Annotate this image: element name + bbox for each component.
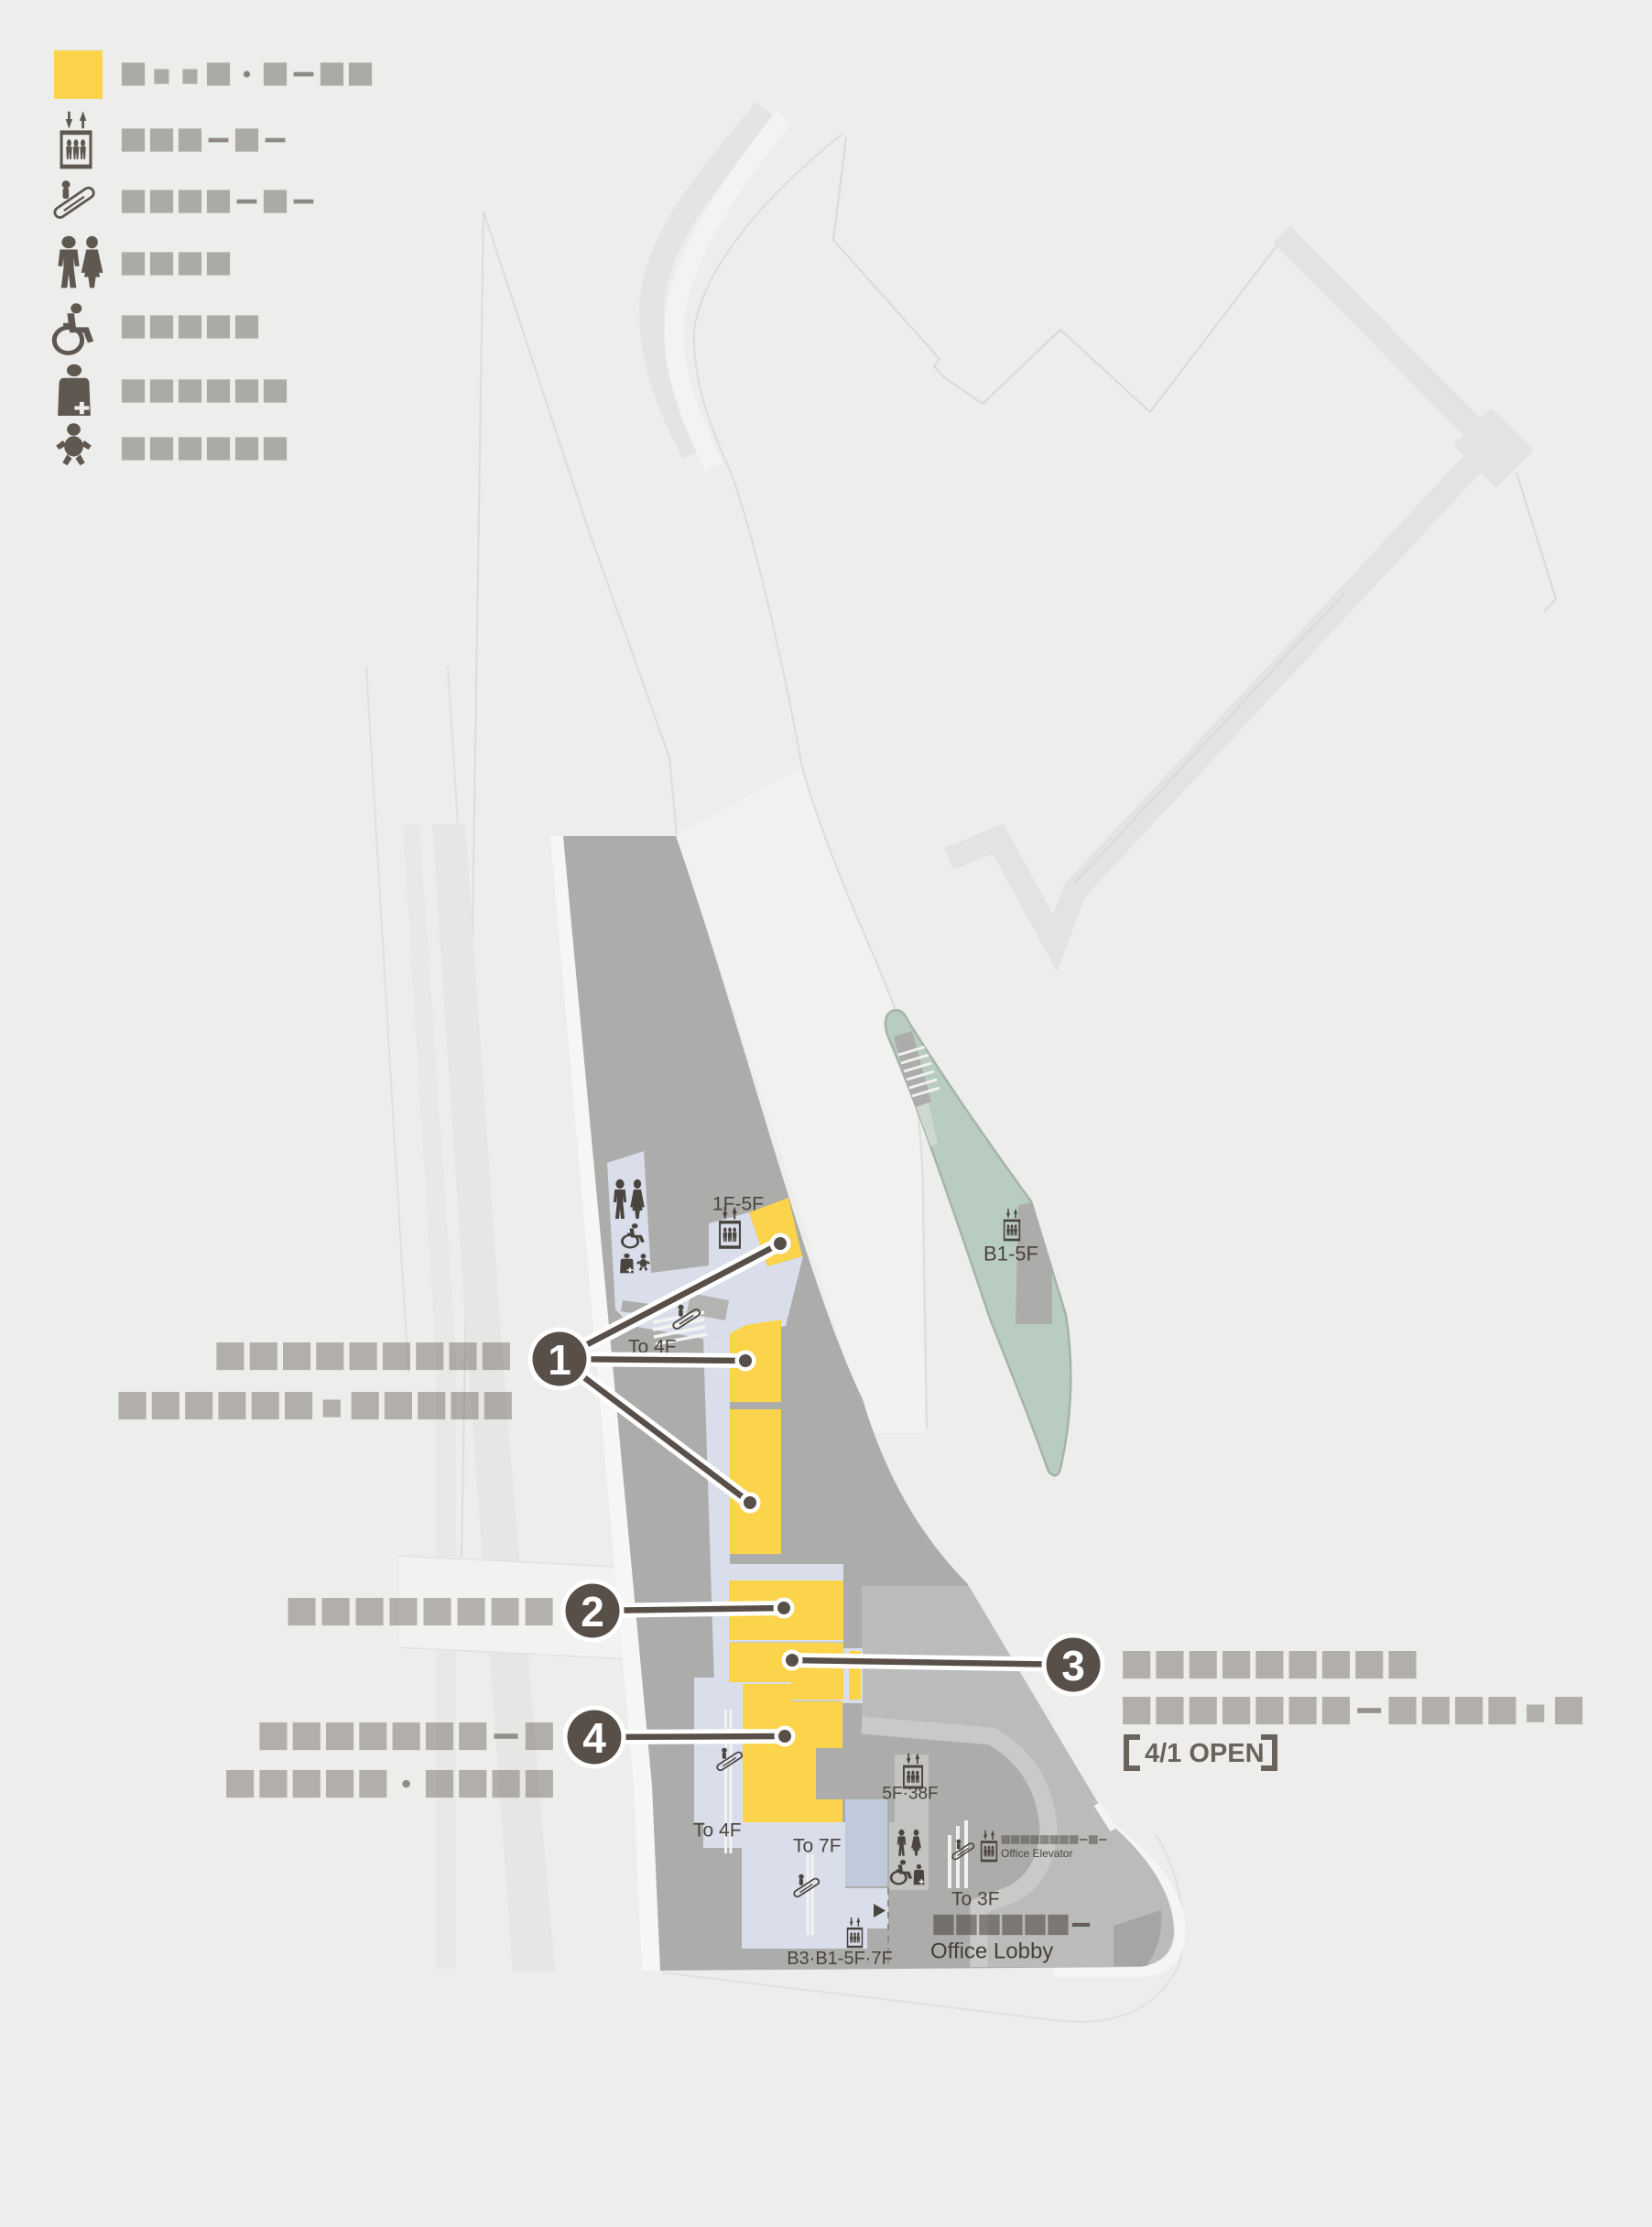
svg-text:Office Lobby: Office Lobby [930,1939,1053,1964]
svg-text:1F-5F: 1F-5F [712,1194,764,1215]
svg-text:To 3F: To 3F [951,1889,1000,1910]
svg-text:To 4F: To 4F [693,1820,742,1841]
svg-text:2: 2 [581,1588,604,1635]
svg-text:4: 4 [582,1714,606,1762]
svg-text:4/1 OPEN: 4/1 OPEN [1145,1739,1265,1768]
svg-text:1: 1 [548,1336,571,1384]
svg-text:5F·38F: 5F·38F [882,1785,938,1804]
svg-text:3: 3 [1061,1642,1085,1689]
svg-text:To 7F: To 7F [793,1836,842,1857]
svg-text:B3·B1-5F·7F: B3·B1-5F·7F [787,1949,893,1969]
svg-text:Office Elevator: Office Elevator [1001,1847,1072,1860]
svg-text:B1-5F: B1-5F [984,1243,1038,1266]
